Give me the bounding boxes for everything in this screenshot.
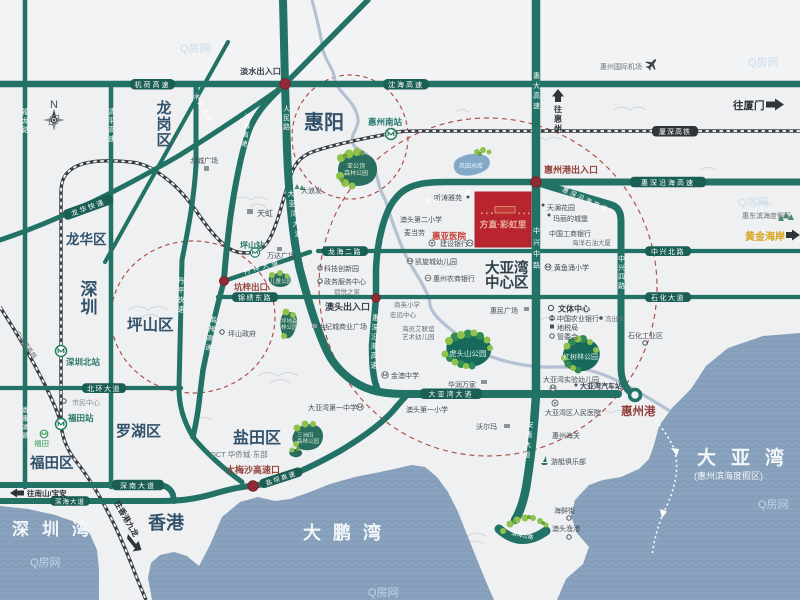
svg-text:罗湖区: 罗湖区	[116, 423, 161, 440]
svg-text:澳头出入口: 澳头出入口	[325, 301, 370, 312]
svg-text:淡水出入口: 淡水出入口	[240, 66, 281, 76]
svg-text:福田站: 福田站	[67, 413, 94, 423]
svg-text:坪地森: 坪地森	[281, 317, 298, 325]
svg-text:森林公园: 森林公园	[344, 169, 368, 177]
svg-text:Q房网: Q房网	[738, 196, 769, 209]
svg-text:中国农业银行: 中国农业银行	[557, 314, 599, 323]
svg-text:黄鱼涌小学: 黄鱼涌小学	[554, 263, 589, 272]
svg-text:华润万家: 华润万家	[448, 380, 476, 389]
svg-text:OCT 华侨城·东部: OCT 华侨城·东部	[210, 449, 268, 459]
svg-text:海洋石油大厦: 海洋石油大厦	[572, 238, 612, 247]
svg-text:机荷高速: 机荷高速	[135, 80, 171, 89]
svg-text:福田区: 福田区	[29, 454, 74, 472]
svg-text:科技创新园: 科技创新园	[324, 264, 359, 273]
svg-text:坑梓出口: 坑梓出口	[234, 282, 268, 292]
svg-text:文体中心: 文体中心	[558, 304, 590, 314]
svg-text:天澜花园: 天澜花园	[547, 203, 575, 212]
svg-text:宏远中心: 宏远中心	[390, 310, 417, 319]
svg-text:大亚湾第一中学: 大亚湾第一中学	[308, 403, 357, 412]
svg-text:龙海二路: 龙海二路	[328, 247, 362, 256]
svg-text:澳头渔港: 澳头渔港	[552, 524, 580, 533]
svg-text:惠州南站: 惠州南站	[368, 117, 403, 127]
svg-text:大亚湾: 大亚湾	[697, 446, 799, 469]
svg-text:龙城广场: 龙城广场	[190, 156, 218, 165]
svg-text:(惠州滨海度假区): (惠州滨海度假区)	[694, 470, 763, 481]
svg-text:人民路: 人民路	[283, 105, 290, 131]
svg-text:Q房网: Q房网	[368, 586, 399, 599]
svg-text:石化大道: 石化大道	[651, 293, 685, 302]
svg-text:惠阳: 惠阳	[304, 111, 344, 134]
svg-text:往惠州: 往惠州	[553, 104, 562, 133]
svg-text:中心区: 中心区	[485, 274, 529, 292]
svg-text:林公园: 林公园	[281, 323, 298, 331]
svg-text:麦当劳: 麦当劳	[404, 228, 425, 237]
svg-text:往南山/宝安: 往南山/宝安	[27, 488, 67, 498]
svg-text:惠深沿海高速: 惠深沿海高速	[641, 178, 695, 187]
svg-text:金澳中学: 金澳中学	[391, 371, 419, 380]
svg-text:惠亚医院: 惠亚医院	[432, 231, 467, 241]
svg-text:澳头第二小学: 澳头第二小学	[400, 215, 442, 224]
svg-text:虎头山公园: 虎头山公园	[449, 348, 487, 358]
svg-text:商英小学: 商英小学	[394, 300, 421, 309]
svg-text:世纪城商业广场: 世纪城商业广场	[318, 322, 367, 331]
svg-text:往厦门: 往厦门	[733, 99, 765, 112]
svg-text:海员艾联谊: 海员艾联谊	[402, 324, 435, 333]
svg-text:盐田区: 盐田区	[233, 428, 281, 447]
svg-text:游艇俱乐部: 游艇俱乐部	[551, 457, 586, 466]
svg-text:大鹏湾: 大鹏湾	[303, 522, 393, 543]
svg-text:Q房网: Q房网	[180, 42, 211, 55]
svg-text:亚公顶: 亚公顶	[347, 163, 365, 170]
svg-text:方直·彩虹里: 方直·彩虹里	[480, 219, 527, 230]
svg-text:凯旋城幼儿园: 凯旋城幼儿园	[415, 257, 457, 266]
svg-text:万达广场: 万达广场	[267, 251, 295, 260]
svg-text:坪山站: 坪山站	[240, 240, 264, 250]
svg-text:石化工业区: 石化工业区	[628, 331, 663, 340]
svg-text:坪山区: 坪山区	[127, 316, 174, 334]
svg-text:冻出水: 冻出水	[605, 314, 625, 323]
svg-text:锦绣东路: 锦绣东路	[238, 293, 272, 302]
svg-text:惠州海关: 惠州海关	[552, 431, 580, 440]
svg-text:福田: 福田	[34, 439, 49, 448]
svg-text:儿童公园: 儿童公园	[270, 277, 293, 285]
svg-text:厦深高铁: 厦深高铁	[659, 127, 691, 136]
svg-text:惠东滨海度假区: 惠东滨海度假区	[742, 211, 791, 220]
svg-text:大亚湾: 大亚湾	[485, 259, 529, 277]
svg-text:北环大道: 北环大道	[87, 384, 121, 393]
svg-text:澳头第一小学: 澳头第一小学	[406, 405, 448, 414]
svg-text:惠民广场: 惠民广场	[490, 306, 518, 315]
svg-text:沃尔玛: 沃尔玛	[476, 422, 497, 431]
svg-text:惠州港: 惠州港	[621, 404, 656, 418]
svg-text:坪山政府: 坪山政府	[228, 329, 256, 338]
svg-text:管委会: 管委会	[557, 332, 578, 341]
svg-text:大亚湾区人民医院: 大亚湾区人民医院	[545, 408, 601, 417]
svg-text:大亚湾大道: 大亚湾大道	[429, 390, 474, 399]
svg-text:天虹: 天虹	[257, 209, 273, 218]
svg-text:深南大道: 深南大道	[120, 481, 156, 490]
svg-text:惠州农商银行: 惠州农商银行	[433, 274, 475, 283]
svg-text:Q房网: Q房网	[758, 498, 789, 511]
svg-text:三洲田: 三洲田	[297, 432, 314, 439]
svg-text:中国工商银行: 中国工商银行	[549, 229, 591, 238]
svg-text:香港: 香港	[147, 513, 185, 533]
svg-text:地税局: 地税局	[557, 323, 578, 332]
svg-text:红树林公园: 红树林公园	[563, 352, 598, 361]
svg-text:沈海高速: 沈海高速	[388, 80, 424, 89]
svg-text:艺术幼儿园: 艺术幼儿园	[402, 332, 435, 341]
svg-text:龙岗区: 龙岗区	[155, 99, 171, 149]
svg-text:大浪发: 大浪发	[301, 186, 322, 195]
svg-text:市民中心: 市民中心	[72, 398, 100, 407]
svg-text:森林公园: 森林公园	[297, 437, 320, 445]
svg-text:惠州港出入口: 惠州港出入口	[544, 164, 598, 175]
svg-text:Q房网: Q房网	[30, 556, 61, 569]
svg-text:大梅沙高速口: 大梅沙高速口	[226, 464, 280, 475]
svg-text:政务服务中心: 政务服务中心	[324, 277, 366, 286]
svg-text:建设银行: 建设银行	[440, 239, 468, 248]
svg-text:海鲜街: 海鲜街	[554, 506, 575, 515]
svg-text:福龙路: 福龙路	[22, 107, 29, 134]
svg-text:听涛雅苑: 听涛雅苑	[434, 193, 462, 202]
svg-text:惠州国际机场: 惠州国际机场	[600, 62, 642, 71]
svg-text:黄金海岸: 黄金海岸	[745, 230, 785, 243]
svg-text:深圳: 深圳	[81, 279, 98, 317]
svg-text:玛丽的城堡: 玛丽的城堡	[553, 214, 588, 223]
svg-text:深圳湾: 深圳湾	[12, 519, 102, 539]
svg-text:大亚湾实验幼儿园: 大亚湾实验幼儿园	[543, 375, 599, 384]
svg-text:中兴北路: 中兴北路	[651, 247, 685, 256]
svg-text:Q房网: Q房网	[748, 56, 779, 69]
svg-text:龙华区: 龙华区	[65, 231, 107, 247]
svg-text:深圳北站: 深圳北站	[66, 357, 101, 367]
svg-text:宿悦之家: 宿悦之家	[334, 287, 361, 296]
svg-text:香蜜湖路: 香蜜湖路	[22, 405, 29, 440]
svg-text:风田水库: 风田水库	[459, 162, 483, 170]
